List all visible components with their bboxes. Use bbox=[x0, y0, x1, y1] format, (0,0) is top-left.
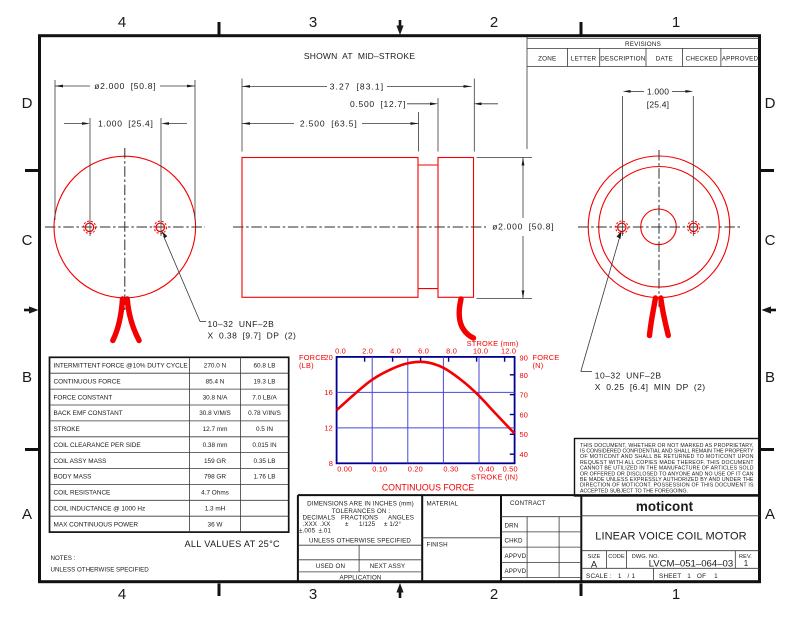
svg-text:80: 80 bbox=[520, 371, 529, 380]
svg-text:APPLICATION: APPLICATION bbox=[339, 575, 381, 582]
svg-text:C: C bbox=[22, 232, 33, 249]
svg-text:3: 3 bbox=[309, 14, 317, 31]
svg-text:moticont: moticont bbox=[636, 499, 694, 514]
svg-text:BACK EMF CONSTANT: BACK EMF CONSTANT bbox=[54, 410, 123, 417]
svg-text:12.7 mm: 12.7 mm bbox=[203, 426, 228, 433]
svg-text:10–32 UNF–2B: 10–32 UNF–2B bbox=[595, 371, 662, 381]
svg-text:30.8 V/M/S: 30.8 V/M/S bbox=[199, 410, 231, 417]
svg-text:MATERIAL: MATERIAL bbox=[427, 501, 459, 508]
svg-text:COIL ASSY MASS: COIL ASSY MASS bbox=[54, 458, 107, 465]
svg-text:3: 3 bbox=[309, 586, 317, 603]
svg-text:1.000 [25.4]: 1.000 [25.4] bbox=[98, 119, 153, 129]
svg-text:NEXT ASSY: NEXT ASSY bbox=[370, 563, 406, 570]
svg-text:± 1/2°: ± 1/2° bbox=[384, 521, 401, 528]
svg-text:1.76 LB: 1.76 LB bbox=[253, 474, 275, 481]
svg-text:16: 16 bbox=[324, 388, 333, 397]
svg-text:LETTER: LETTER bbox=[571, 55, 597, 62]
svg-text:STROKE (mm): STROKE (mm) bbox=[467, 339, 519, 348]
svg-text:BODY MASS: BODY MASS bbox=[54, 474, 92, 481]
svg-text:1.000: 1.000 bbox=[647, 86, 669, 96]
svg-text:2: 2 bbox=[490, 14, 498, 31]
svg-text:0.00: 0.00 bbox=[337, 465, 352, 474]
svg-text:B: B bbox=[22, 369, 32, 386]
svg-text:MAX CONTINUOUS POWER: MAX CONTINUOUS POWER bbox=[54, 521, 139, 528]
svg-text:0.35 LB: 0.35 LB bbox=[253, 458, 275, 465]
svg-text:ZONE: ZONE bbox=[538, 55, 556, 62]
svg-text:0.0: 0.0 bbox=[335, 347, 346, 356]
svg-text:LVCM–051–064–03: LVCM–051–064–03 bbox=[649, 558, 734, 569]
svg-text:36 W: 36 W bbox=[208, 521, 224, 528]
svg-text:A: A bbox=[22, 506, 32, 523]
svg-text:7.0 LB/A: 7.0 LB/A bbox=[252, 394, 277, 401]
svg-text:CHKD: CHKD bbox=[505, 538, 524, 545]
svg-text:1/125: 1/125 bbox=[359, 521, 376, 528]
svg-text:X 0.25 [6.4] MIN DP (2): X 0.25 [6.4] MIN DP (2) bbox=[595, 382, 706, 392]
svg-text:STROKE (IN): STROKE (IN) bbox=[471, 472, 518, 481]
svg-text:CHECKED: CHECKED bbox=[686, 55, 718, 62]
svg-text:SHEET 1 OF 1: SHEET 1 OF 1 bbox=[659, 573, 718, 580]
svg-text:8.0: 8.0 bbox=[446, 347, 457, 356]
svg-text:DIMENSIONS ARE IN INCHES (mm): DIMENSIONS ARE IN INCHES (mm) bbox=[307, 501, 414, 508]
svg-text:30.8 N/A: 30.8 N/A bbox=[203, 394, 229, 401]
svg-text:A: A bbox=[765, 506, 775, 523]
svg-text:4.7 Ohms: 4.7 Ohms bbox=[201, 490, 229, 497]
svg-text:ALL VALUES AT 25°C: ALL VALUES AT 25°C bbox=[184, 539, 280, 549]
svg-text:0.38 mm: 0.38 mm bbox=[203, 442, 228, 449]
svg-text:B: B bbox=[765, 369, 775, 386]
svg-text:UNLESS OTHERWISE SPECIFIED: UNLESS OTHERWISE SPECIFIED bbox=[309, 538, 411, 545]
svg-text:10–32 UNF–2B: 10–32 UNF–2B bbox=[208, 319, 275, 329]
svg-text:CONTINUOUS FORCE: CONTINUOUS FORCE bbox=[382, 483, 474, 493]
svg-text:4.0: 4.0 bbox=[390, 347, 401, 356]
svg-text:270.0 N: 270.0 N bbox=[204, 363, 227, 370]
svg-text:USED ON: USED ON bbox=[316, 563, 345, 570]
svg-text:1: 1 bbox=[672, 14, 680, 31]
svg-text:NOTES :: NOTES : bbox=[51, 555, 76, 562]
svg-text:CODE: CODE bbox=[608, 554, 625, 560]
svg-text:3.27 [83.1]: 3.27 [83.1] bbox=[330, 81, 384, 91]
svg-text:DRN: DRN bbox=[505, 522, 519, 529]
svg-text:4: 4 bbox=[118, 586, 126, 603]
svg-text:70: 70 bbox=[520, 391, 529, 400]
svg-text:ACCEPTED SUBJECT TO THE FOREGO: ACCEPTED SUBJECT TO THE FOREGOING. bbox=[580, 488, 688, 494]
svg-text:DATE: DATE bbox=[656, 55, 673, 62]
svg-text:STROKE: STROKE bbox=[54, 426, 80, 433]
svg-text:UNLESS OTHERWISE SPECIFIED: UNLESS OTHERWISE SPECIFIED bbox=[51, 566, 150, 573]
svg-text:A: A bbox=[591, 558, 598, 569]
svg-text:±.005: ±.005 bbox=[299, 528, 316, 535]
svg-text:60.8 LB: 60.8 LB bbox=[253, 363, 275, 370]
svg-text:APPVD: APPVD bbox=[505, 553, 527, 560]
svg-text:40: 40 bbox=[520, 450, 529, 459]
svg-text:X 0.38 [9.7] DP (2): X 0.38 [9.7] DP (2) bbox=[208, 330, 297, 340]
svg-text:(N): (N) bbox=[533, 361, 544, 370]
svg-text:COIL RESISTANCE: COIL RESISTANCE bbox=[54, 490, 111, 497]
svg-text:0.30: 0.30 bbox=[443, 465, 458, 474]
svg-text:[25.4]: [25.4] bbox=[647, 99, 669, 109]
svg-text:0.20: 0.20 bbox=[408, 465, 423, 474]
svg-text:19.3 LB: 19.3 LB bbox=[253, 378, 275, 385]
svg-text:798 GR: 798 GR bbox=[204, 474, 226, 481]
svg-text:REVISIONS: REVISIONS bbox=[625, 41, 661, 48]
svg-text:ø2.000 [50.8]: ø2.000 [50.8] bbox=[94, 81, 156, 91]
svg-text:12.0: 12.0 bbox=[501, 347, 516, 356]
svg-text:LINEAR VOICE COIL MOTOR: LINEAR VOICE COIL MOTOR bbox=[595, 530, 746, 542]
svg-text:6.0: 6.0 bbox=[418, 347, 429, 356]
svg-text:FORCE CONSTANT: FORCE CONSTANT bbox=[54, 394, 113, 401]
svg-text:1: 1 bbox=[672, 586, 680, 603]
svg-text:2: 2 bbox=[490, 586, 498, 603]
svg-text:1: 1 bbox=[744, 559, 749, 568]
svg-text:0.015 IN: 0.015 IN bbox=[252, 442, 277, 449]
svg-text:(LB): (LB) bbox=[299, 361, 314, 370]
svg-text:D: D bbox=[22, 95, 33, 112]
svg-text:60: 60 bbox=[520, 410, 529, 419]
svg-text:CONTRACT: CONTRACT bbox=[510, 500, 546, 507]
svg-text:50: 50 bbox=[520, 430, 529, 439]
svg-text:2.500 [63.5]: 2.500 [63.5] bbox=[300, 119, 357, 129]
svg-text:CONTINUOUS FORCE: CONTINUOUS FORCE bbox=[54, 378, 121, 385]
svg-text:ø2.000 [50.8]: ø2.000 [50.8] bbox=[492, 222, 554, 232]
svg-text:SCALE : 1 / 1: SCALE : 1 / 1 bbox=[586, 573, 635, 580]
svg-text:INTERMITTENT FORCE @10% DUTY C: INTERMITTENT FORCE @10% DUTY CYCLE bbox=[54, 363, 188, 370]
svg-text:±: ± bbox=[345, 521, 349, 528]
svg-text:10.0: 10.0 bbox=[473, 347, 488, 356]
svg-text:0.78 V/IN/S: 0.78 V/IN/S bbox=[248, 410, 281, 417]
svg-text:COIL CLEARANCE PER SIDE: COIL CLEARANCE PER SIDE bbox=[54, 442, 141, 449]
svg-text:0.5 IN: 0.5 IN bbox=[256, 426, 273, 433]
svg-text:C: C bbox=[765, 232, 776, 249]
svg-text:FINISH: FINISH bbox=[427, 541, 448, 548]
svg-text:APPROVED: APPROVED bbox=[722, 55, 759, 62]
svg-text:±.01: ±.01 bbox=[319, 528, 332, 535]
svg-text:8: 8 bbox=[329, 459, 333, 468]
svg-text:SHOWN AT MID–STROKE: SHOWN AT MID–STROKE bbox=[304, 51, 415, 61]
svg-text:0.500 [12.7]: 0.500 [12.7] bbox=[350, 99, 406, 109]
svg-text:DESCRIPTION: DESCRIPTION bbox=[600, 55, 645, 62]
svg-text:12: 12 bbox=[324, 424, 333, 433]
svg-text:1.3 mH: 1.3 mH bbox=[205, 506, 226, 513]
svg-text:2.0: 2.0 bbox=[362, 347, 373, 356]
svg-text:90: 90 bbox=[520, 353, 529, 362]
svg-text:85.4 N: 85.4 N bbox=[206, 378, 225, 385]
svg-text:0.10: 0.10 bbox=[372, 465, 387, 474]
svg-text:4: 4 bbox=[118, 14, 126, 31]
svg-text:159 GR: 159 GR bbox=[204, 458, 226, 465]
svg-text:COIL INDUCTANCE @ 1000 Hz: COIL INDUCTANCE @ 1000 Hz bbox=[54, 506, 146, 513]
svg-text:D: D bbox=[765, 95, 776, 112]
svg-text:APPVD: APPVD bbox=[505, 568, 527, 575]
